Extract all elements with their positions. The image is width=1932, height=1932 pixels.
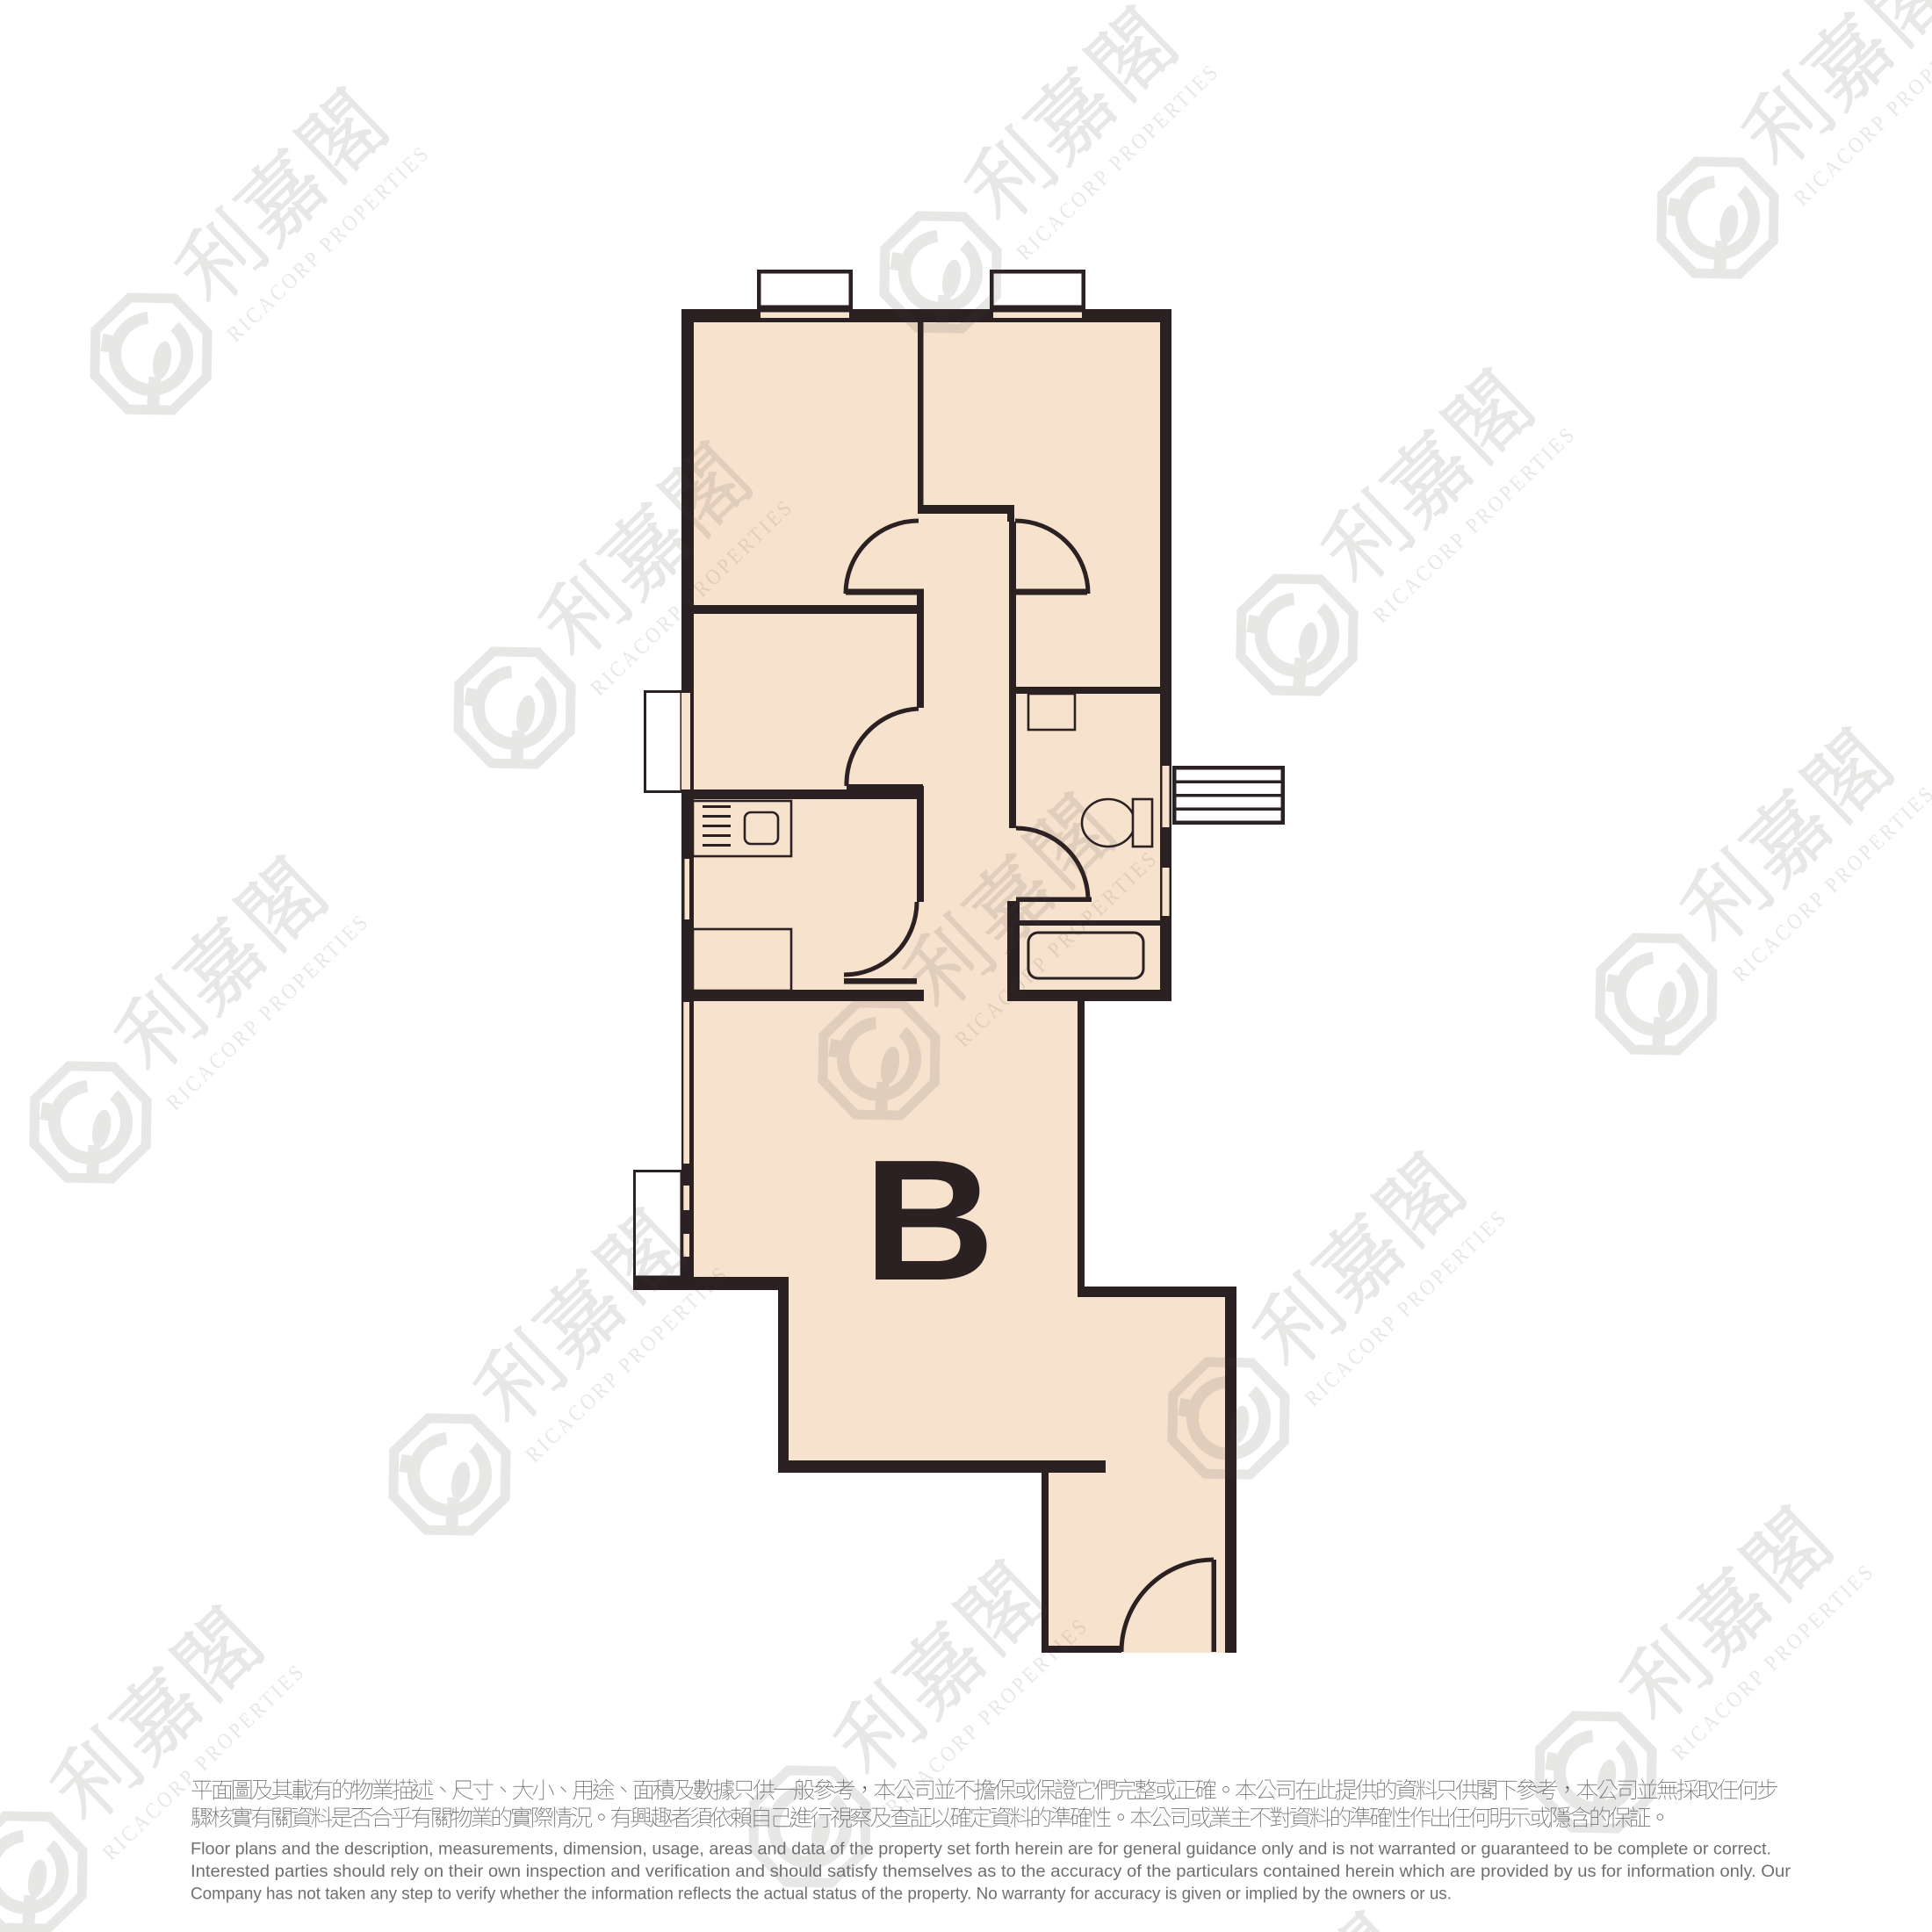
svg-text:B: B <box>863 1123 995 1316</box>
svg-text:Interested parties should rely: Interested parties should rely on their … <box>191 1863 1791 1881</box>
svg-text:Floor plans and the descriptio: Floor plans and the description, measure… <box>191 1841 1771 1859</box>
svg-text:Company has not taken any step: Company has not taken any step to verify… <box>191 1885 1452 1904</box>
